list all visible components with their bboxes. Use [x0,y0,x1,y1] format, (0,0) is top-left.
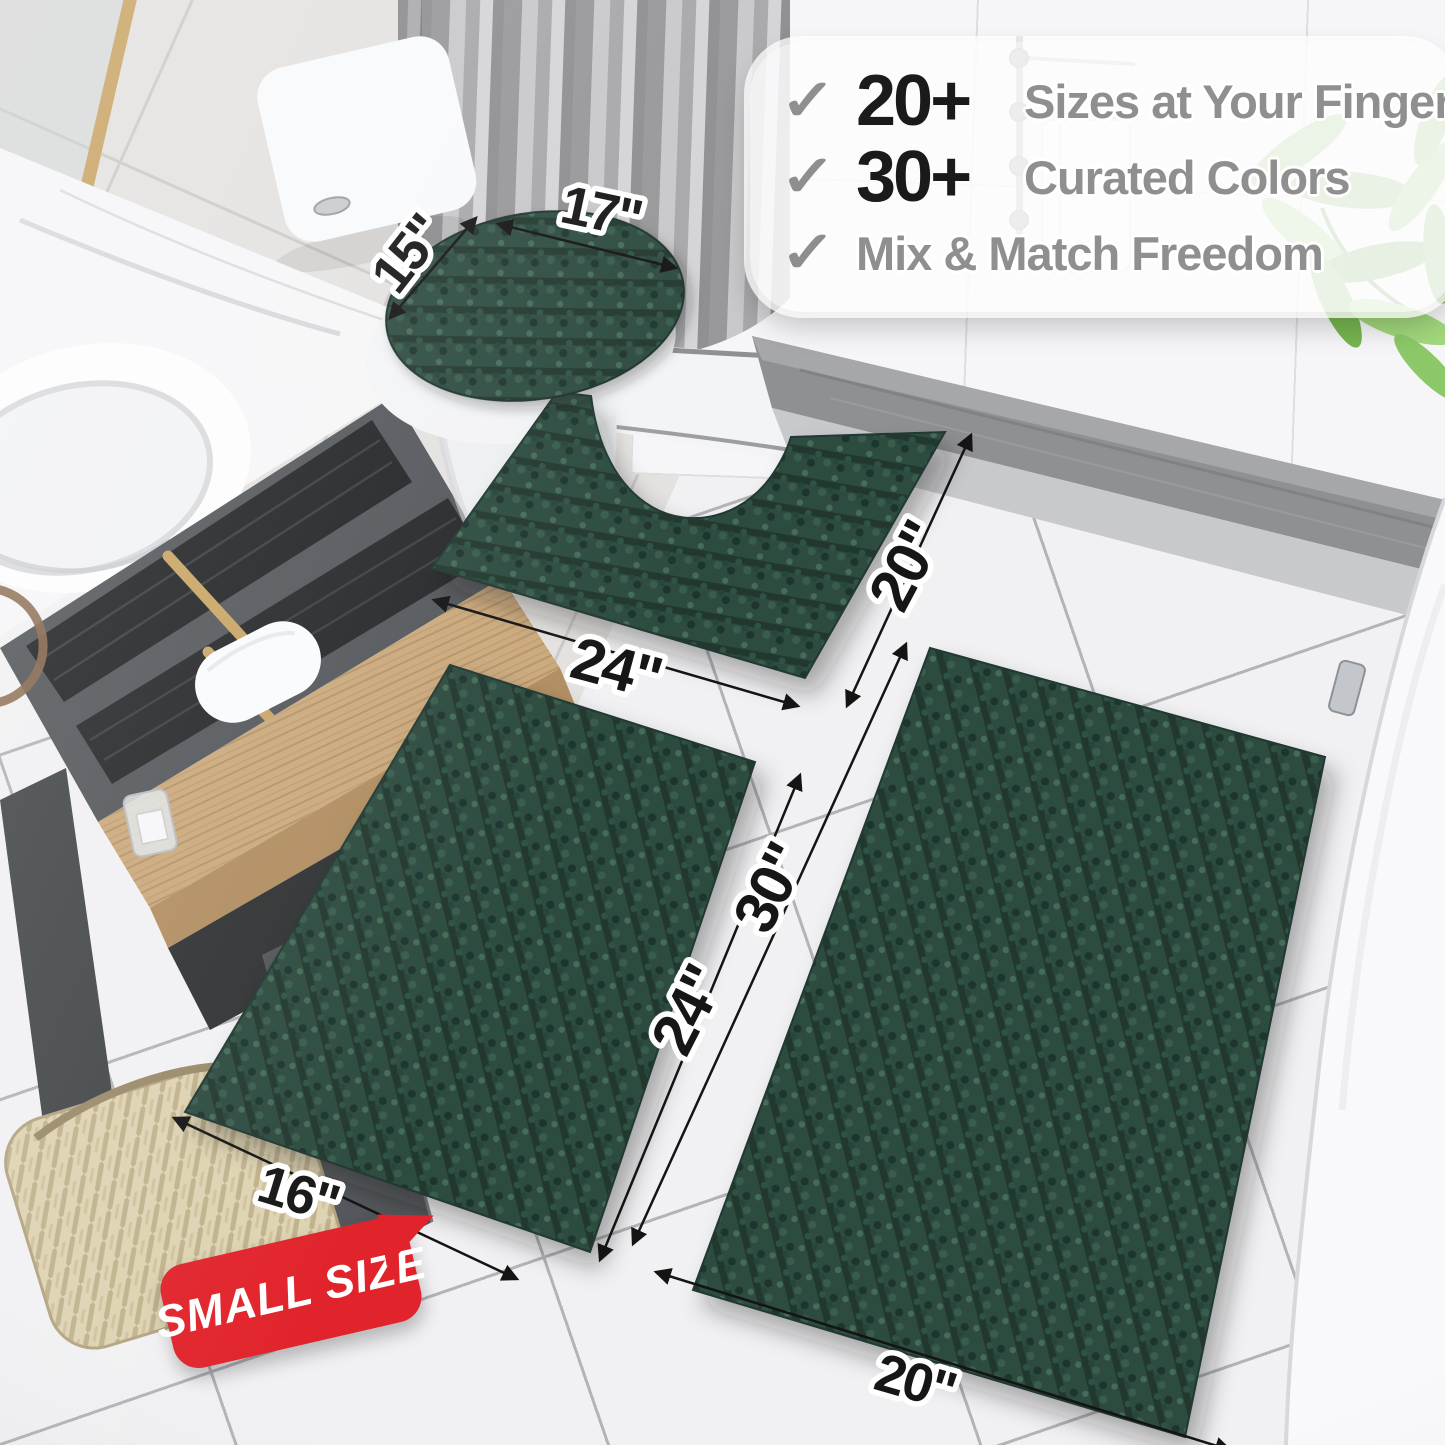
feature-row-colors: ✓ 30+ Curated Colors [784,140,1428,214]
check-icon: ✓ [780,224,840,282]
product-image: 17" 15" 24" 20" 24" 30" 16" 20" ✓ 20+ Si… [0,0,1445,1445]
check-icon: ✓ [780,72,840,130]
feature-count: 30+ [856,141,1004,213]
bathtub [1286,498,1445,1445]
label-contour-24: 24" [564,624,667,712]
feature-text: Mix & Match Freedom [856,230,1323,277]
feature-row-sizes: ✓ 20+ Sizes at Your Fingertips [784,64,1428,138]
feature-count: 20+ [856,65,1004,137]
feature-callout-panel: ✓ 20+ Sizes at Your Fingertips ✓ 30+ Cur… [750,42,1445,312]
large-rug [693,648,1325,1437]
check-icon: ✓ [780,148,840,206]
feature-row-mix-match: ✓ Mix & Match Freedom [784,216,1428,290]
label-large-30: 30" [720,833,820,943]
feature-text: Curated Colors [1024,154,1350,201]
bottle-label [136,809,168,844]
glass-bracket [1328,660,1367,717]
feature-text: Sizes at Your Fingertips [1024,78,1445,125]
